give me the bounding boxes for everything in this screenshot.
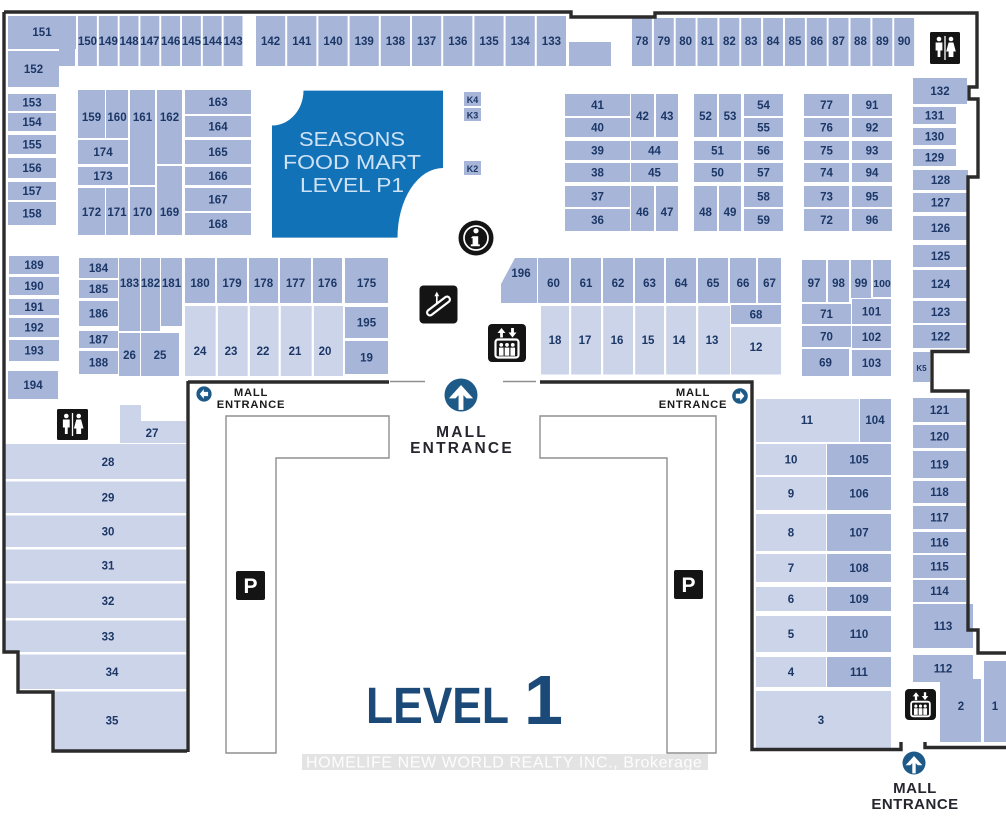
svg-text:47: 47 bbox=[661, 207, 674, 219]
svg-text:184: 184 bbox=[89, 263, 109, 275]
svg-text:22: 22 bbox=[257, 346, 270, 358]
svg-text:174: 174 bbox=[93, 147, 113, 159]
svg-text:60: 60 bbox=[547, 278, 560, 290]
svg-text:105: 105 bbox=[849, 455, 869, 467]
svg-text:144: 144 bbox=[203, 36, 223, 48]
svg-text:172: 172 bbox=[82, 207, 101, 219]
svg-text:K3: K3 bbox=[467, 111, 479, 121]
svg-text:116: 116 bbox=[930, 538, 949, 550]
svg-text:42: 42 bbox=[636, 111, 649, 123]
svg-text:145: 145 bbox=[182, 36, 202, 48]
svg-text:31: 31 bbox=[102, 561, 115, 573]
svg-text:106: 106 bbox=[849, 489, 868, 501]
svg-text:8: 8 bbox=[788, 528, 795, 540]
svg-text:72: 72 bbox=[820, 215, 833, 227]
svg-text:163: 163 bbox=[208, 97, 227, 109]
svg-text:176: 176 bbox=[318, 278, 337, 290]
svg-text:43: 43 bbox=[661, 111, 674, 123]
svg-text:77: 77 bbox=[820, 100, 833, 112]
svg-text:181: 181 bbox=[162, 278, 182, 290]
svg-text:28: 28 bbox=[102, 457, 115, 469]
svg-text:157: 157 bbox=[22, 186, 41, 198]
svg-text:90: 90 bbox=[898, 36, 911, 48]
svg-text:147: 147 bbox=[140, 36, 159, 48]
svg-text:122: 122 bbox=[931, 332, 950, 344]
svg-text:114: 114 bbox=[930, 586, 949, 598]
svg-text:71: 71 bbox=[820, 309, 833, 321]
svg-text:68: 68 bbox=[750, 310, 763, 322]
svg-text:124: 124 bbox=[931, 279, 951, 291]
svg-text:15: 15 bbox=[642, 335, 655, 347]
svg-text:SEASONS: SEASONS bbox=[299, 129, 405, 151]
svg-text:85: 85 bbox=[789, 36, 802, 48]
svg-text:127: 127 bbox=[931, 198, 950, 210]
svg-text:17: 17 bbox=[579, 335, 592, 347]
svg-text:ENTRANCE: ENTRANCE bbox=[217, 399, 286, 411]
svg-text:191: 191 bbox=[24, 302, 44, 314]
svg-text:51: 51 bbox=[711, 146, 724, 158]
svg-text:193: 193 bbox=[24, 346, 43, 358]
svg-text:5: 5 bbox=[788, 629, 795, 641]
svg-text:67: 67 bbox=[763, 278, 776, 290]
svg-text:48: 48 bbox=[699, 207, 712, 219]
svg-text:86: 86 bbox=[810, 36, 823, 48]
svg-text:64: 64 bbox=[675, 278, 688, 290]
svg-text:111: 111 bbox=[850, 667, 869, 679]
svg-text:148: 148 bbox=[119, 36, 139, 48]
svg-text:88: 88 bbox=[854, 36, 867, 48]
svg-text:7: 7 bbox=[788, 563, 794, 575]
svg-text:132: 132 bbox=[930, 86, 949, 98]
svg-text:113: 113 bbox=[934, 621, 953, 633]
svg-text:194: 194 bbox=[23, 380, 43, 392]
svg-text:92: 92 bbox=[866, 123, 879, 135]
svg-text:2: 2 bbox=[958, 701, 964, 713]
svg-text:125: 125 bbox=[931, 251, 951, 263]
svg-text:75: 75 bbox=[820, 146, 833, 158]
svg-text:100: 100 bbox=[873, 278, 891, 290]
svg-text:53: 53 bbox=[724, 111, 737, 123]
svg-text:180: 180 bbox=[190, 278, 209, 290]
svg-text:39: 39 bbox=[591, 146, 604, 158]
svg-text:33: 33 bbox=[102, 632, 115, 644]
svg-text:MALL: MALL bbox=[893, 780, 937, 797]
svg-text:29: 29 bbox=[102, 493, 115, 505]
svg-text:168: 168 bbox=[208, 219, 228, 231]
svg-text:196: 196 bbox=[511, 268, 530, 280]
svg-text:83: 83 bbox=[745, 36, 758, 48]
svg-text:62: 62 bbox=[612, 278, 625, 290]
svg-text:96: 96 bbox=[866, 215, 879, 227]
svg-text:141: 141 bbox=[292, 36, 312, 48]
svg-text:24: 24 bbox=[194, 346, 207, 358]
svg-text:182: 182 bbox=[141, 278, 160, 290]
svg-text:167: 167 bbox=[208, 195, 227, 207]
svg-text:13: 13 bbox=[706, 335, 719, 347]
svg-text:126: 126 bbox=[931, 223, 950, 235]
svg-text:175: 175 bbox=[357, 278, 377, 290]
svg-text:K5: K5 bbox=[916, 364, 927, 373]
svg-text:185: 185 bbox=[89, 284, 109, 296]
svg-text:37: 37 bbox=[591, 192, 604, 204]
svg-text:MALL: MALL bbox=[436, 424, 488, 441]
svg-text:P: P bbox=[243, 575, 257, 598]
svg-text:P: P bbox=[681, 574, 695, 597]
svg-text:138: 138 bbox=[386, 36, 406, 48]
svg-text:164: 164 bbox=[208, 122, 228, 134]
svg-text:137: 137 bbox=[417, 36, 436, 48]
svg-text:3: 3 bbox=[818, 715, 824, 727]
svg-text:143: 143 bbox=[223, 36, 242, 48]
svg-text:130: 130 bbox=[925, 132, 944, 144]
svg-text:140: 140 bbox=[323, 36, 342, 48]
svg-text:98: 98 bbox=[832, 278, 845, 290]
svg-text:93: 93 bbox=[866, 146, 879, 158]
svg-text:128: 128 bbox=[931, 175, 951, 187]
svg-text:95: 95 bbox=[866, 192, 879, 204]
svg-text:ENTRANCE: ENTRANCE bbox=[659, 399, 728, 411]
svg-text:171: 171 bbox=[107, 207, 127, 219]
svg-text:1: 1 bbox=[992, 701, 999, 713]
svg-text:49: 49 bbox=[724, 207, 737, 219]
svg-text:136: 136 bbox=[448, 36, 467, 48]
svg-text:150: 150 bbox=[78, 36, 97, 48]
svg-text:LEVEL P1: LEVEL P1 bbox=[300, 175, 404, 197]
svg-text:9: 9 bbox=[788, 489, 794, 501]
svg-text:119: 119 bbox=[930, 460, 949, 472]
svg-text:190: 190 bbox=[24, 281, 43, 293]
svg-text:134: 134 bbox=[511, 36, 531, 48]
svg-text:FOOD MART: FOOD MART bbox=[283, 152, 421, 174]
svg-text:160: 160 bbox=[107, 112, 126, 124]
svg-text:6: 6 bbox=[788, 594, 794, 606]
svg-text:159: 159 bbox=[82, 112, 101, 124]
svg-text:54: 54 bbox=[757, 100, 770, 112]
svg-text:1: 1 bbox=[524, 661, 563, 739]
svg-text:117: 117 bbox=[930, 513, 949, 525]
svg-text:46: 46 bbox=[636, 207, 649, 219]
svg-text:18: 18 bbox=[549, 335, 562, 347]
svg-text:118: 118 bbox=[930, 487, 949, 499]
svg-text:82: 82 bbox=[723, 36, 736, 48]
svg-text:99: 99 bbox=[855, 278, 868, 290]
svg-text:187: 187 bbox=[89, 335, 108, 347]
svg-text:91: 91 bbox=[866, 100, 879, 112]
svg-text:195: 195 bbox=[357, 318, 377, 330]
svg-text:66: 66 bbox=[737, 278, 750, 290]
svg-text:4: 4 bbox=[788, 667, 795, 679]
svg-text:73: 73 bbox=[820, 192, 833, 204]
svg-text:153: 153 bbox=[22, 98, 41, 110]
svg-text:55: 55 bbox=[757, 123, 770, 135]
svg-text:179: 179 bbox=[222, 278, 241, 290]
svg-text:57: 57 bbox=[757, 168, 770, 180]
svg-text:170: 170 bbox=[133, 207, 152, 219]
svg-text:79: 79 bbox=[657, 36, 670, 48]
svg-text:41: 41 bbox=[591, 100, 604, 112]
svg-text:188: 188 bbox=[89, 358, 109, 370]
svg-text:HOMELIFE NEW WORLD REALTY INC.: HOMELIFE NEW WORLD REALTY INC., Brokerag… bbox=[306, 755, 703, 772]
svg-text:76: 76 bbox=[820, 123, 833, 135]
svg-text:16: 16 bbox=[611, 335, 624, 347]
svg-text:65: 65 bbox=[707, 278, 720, 290]
svg-text:26: 26 bbox=[123, 350, 136, 362]
svg-text:107: 107 bbox=[849, 528, 868, 540]
svg-text:LEVEL: LEVEL bbox=[366, 677, 509, 734]
svg-text:87: 87 bbox=[832, 36, 845, 48]
svg-text:166: 166 bbox=[208, 171, 227, 183]
svg-text:27: 27 bbox=[146, 428, 159, 440]
svg-text:102: 102 bbox=[862, 332, 881, 344]
svg-text:44: 44 bbox=[648, 146, 661, 158]
svg-text:36: 36 bbox=[591, 215, 604, 227]
svg-text:154: 154 bbox=[22, 117, 42, 129]
svg-text:69: 69 bbox=[819, 358, 832, 370]
svg-text:183: 183 bbox=[120, 278, 139, 290]
svg-text:135: 135 bbox=[479, 36, 499, 48]
svg-text:152: 152 bbox=[24, 64, 43, 76]
svg-text:149: 149 bbox=[99, 36, 118, 48]
svg-text:34: 34 bbox=[106, 667, 119, 679]
svg-text:35: 35 bbox=[106, 716, 119, 728]
svg-text:80: 80 bbox=[679, 36, 692, 48]
svg-text:165: 165 bbox=[208, 147, 228, 159]
svg-text:K2: K2 bbox=[467, 164, 479, 174]
svg-text:156: 156 bbox=[22, 163, 41, 175]
svg-text:70: 70 bbox=[820, 332, 833, 344]
svg-text:59: 59 bbox=[757, 215, 770, 227]
svg-text:84: 84 bbox=[767, 36, 780, 48]
svg-text:40: 40 bbox=[591, 123, 604, 135]
svg-text:142: 142 bbox=[261, 36, 280, 48]
svg-text:139: 139 bbox=[355, 36, 374, 48]
svg-text:81: 81 bbox=[701, 36, 714, 48]
svg-text:89: 89 bbox=[876, 36, 889, 48]
svg-text:52: 52 bbox=[699, 111, 712, 123]
svg-text:158: 158 bbox=[22, 209, 42, 221]
svg-text:129: 129 bbox=[925, 153, 944, 165]
svg-text:74: 74 bbox=[820, 168, 833, 180]
svg-text:10: 10 bbox=[785, 455, 798, 467]
svg-text:173: 173 bbox=[93, 171, 112, 183]
svg-text:50: 50 bbox=[711, 168, 724, 180]
svg-text:38: 38 bbox=[591, 168, 604, 180]
svg-text:123: 123 bbox=[931, 307, 950, 319]
svg-text:78: 78 bbox=[636, 36, 649, 48]
svg-text:162: 162 bbox=[160, 112, 179, 124]
svg-text:56: 56 bbox=[757, 146, 770, 158]
svg-text:32: 32 bbox=[102, 596, 115, 608]
svg-text:11: 11 bbox=[801, 415, 814, 427]
svg-text:109: 109 bbox=[849, 594, 868, 606]
svg-text:MALL: MALL bbox=[234, 387, 268, 399]
svg-text:131: 131 bbox=[925, 111, 945, 123]
svg-text:63: 63 bbox=[643, 278, 656, 290]
svg-text:104: 104 bbox=[865, 415, 885, 427]
svg-text:186: 186 bbox=[89, 309, 108, 321]
svg-text:30: 30 bbox=[102, 527, 115, 539]
svg-text:112: 112 bbox=[934, 664, 953, 676]
svg-text:94: 94 bbox=[866, 168, 879, 180]
svg-text:61: 61 bbox=[580, 278, 593, 290]
svg-text:58: 58 bbox=[757, 192, 770, 204]
svg-text:108: 108 bbox=[849, 563, 869, 575]
svg-text:121: 121 bbox=[930, 405, 950, 417]
svg-text:21: 21 bbox=[289, 346, 302, 358]
svg-text:189: 189 bbox=[24, 260, 43, 272]
svg-text:25: 25 bbox=[154, 350, 167, 362]
svg-text:K4: K4 bbox=[467, 95, 479, 105]
svg-text:ENTRANCE: ENTRANCE bbox=[871, 796, 958, 813]
svg-text:103: 103 bbox=[862, 358, 881, 370]
svg-text:155: 155 bbox=[22, 140, 42, 152]
svg-text:23: 23 bbox=[225, 346, 238, 358]
svg-text:14: 14 bbox=[673, 335, 686, 347]
svg-text:19: 19 bbox=[360, 353, 373, 365]
svg-text:161: 161 bbox=[133, 112, 153, 124]
svg-text:45: 45 bbox=[648, 168, 661, 180]
svg-text:169: 169 bbox=[160, 207, 179, 219]
svg-text:101: 101 bbox=[862, 307, 882, 319]
svg-text:115: 115 bbox=[930, 562, 949, 574]
svg-text:177: 177 bbox=[286, 278, 305, 290]
svg-text:120: 120 bbox=[930, 432, 949, 444]
svg-text:20: 20 bbox=[319, 346, 332, 358]
svg-text:MALL: MALL bbox=[676, 387, 710, 399]
svg-text:151: 151 bbox=[32, 27, 52, 39]
svg-text:133: 133 bbox=[542, 36, 561, 48]
svg-text:178: 178 bbox=[254, 278, 274, 290]
svg-text:12: 12 bbox=[750, 342, 763, 354]
svg-text:146: 146 bbox=[161, 36, 180, 48]
svg-text:192: 192 bbox=[24, 323, 43, 335]
svg-text:110: 110 bbox=[850, 629, 869, 641]
svg-text:97: 97 bbox=[808, 278, 821, 290]
svg-text:ENTRANCE: ENTRANCE bbox=[410, 440, 514, 457]
